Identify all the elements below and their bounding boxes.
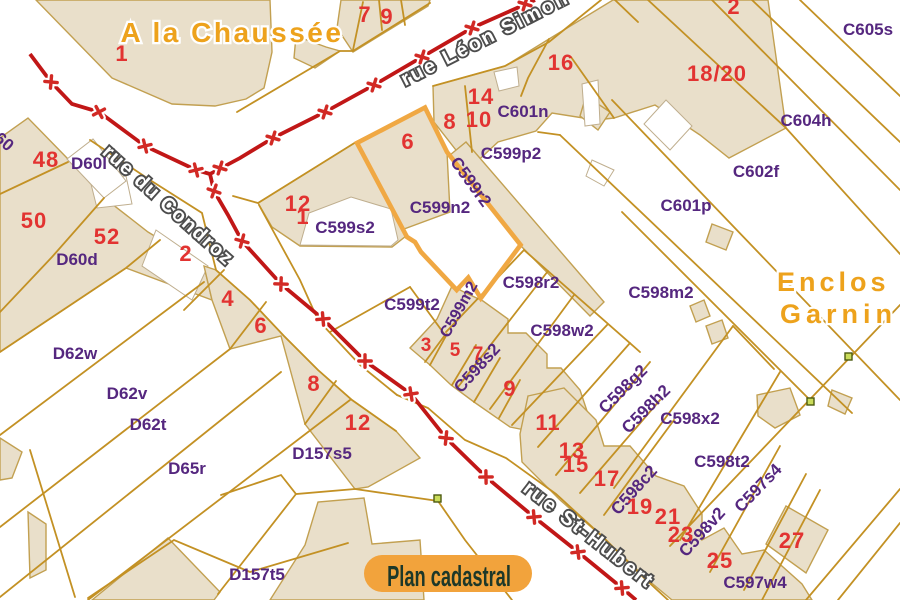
svg-text:1: 1 — [115, 41, 128, 66]
svg-text:C605s: C605s — [843, 20, 893, 39]
svg-text:48: 48 — [33, 147, 59, 172]
svg-text:5: 5 — [450, 340, 461, 361]
svg-text:7: 7 — [358, 2, 371, 27]
svg-text:D60l: D60l — [71, 154, 107, 173]
svg-text:D62w: D62w — [53, 344, 98, 363]
svg-text:C601p: C601p — [660, 196, 711, 215]
svg-text:7: 7 — [473, 344, 484, 365]
svg-text:D157s5: D157s5 — [292, 444, 352, 463]
svg-text:23: 23 — [668, 522, 694, 547]
svg-text:C599n2: C599n2 — [410, 198, 470, 217]
svg-text:25: 25 — [707, 548, 733, 573]
svg-text:C598r2: C598r2 — [503, 273, 560, 292]
svg-text:6: 6 — [254, 313, 267, 338]
svg-text:C598t2: C598t2 — [694, 452, 750, 471]
svg-text:3: 3 — [421, 335, 432, 356]
svg-text:11: 11 — [535, 410, 560, 435]
svg-text:C599t2: C599t2 — [384, 295, 440, 314]
svg-text:C601n: C601n — [497, 102, 548, 121]
svg-text:10: 10 — [466, 107, 492, 132]
svg-text:Garnin: Garnin — [780, 299, 897, 329]
svg-text:D62v: D62v — [107, 384, 148, 403]
svg-text:4: 4 — [221, 286, 234, 311]
svg-text:9: 9 — [380, 4, 393, 29]
svg-text:C597w4: C597w4 — [723, 573, 787, 592]
svg-text:C604h: C604h — [780, 111, 831, 130]
svg-text:12: 12 — [345, 410, 371, 435]
svg-text:6: 6 — [401, 129, 414, 154]
svg-text:C599s2: C599s2 — [315, 218, 375, 237]
svg-text:Plan cadastral: Plan cadastral — [387, 561, 511, 593]
svg-text:C599p2: C599p2 — [481, 144, 541, 163]
svg-text:9: 9 — [503, 376, 516, 401]
svg-text:D60d: D60d — [56, 250, 98, 269]
svg-text:8: 8 — [307, 371, 320, 396]
svg-text:19: 19 — [627, 494, 653, 519]
svg-text:Enclos: Enclos — [777, 267, 890, 297]
svg-text:C598w2: C598w2 — [530, 321, 593, 340]
svg-text:C598x2: C598x2 — [660, 409, 720, 428]
svg-text:A la Chaussée: A la Chaussée — [121, 17, 344, 48]
svg-text:D157t5: D157t5 — [229, 565, 285, 584]
svg-text:52: 52 — [94, 224, 120, 249]
svg-text:27: 27 — [779, 528, 805, 553]
svg-text:D65r: D65r — [168, 459, 206, 478]
svg-text:1: 1 — [296, 204, 309, 229]
svg-text:D62t: D62t — [130, 415, 167, 434]
svg-text:2: 2 — [727, 0, 740, 19]
svg-text:50: 50 — [21, 208, 47, 233]
svg-text:C602f: C602f — [733, 162, 780, 181]
svg-text:16: 16 — [548, 50, 574, 75]
svg-text:17: 17 — [594, 466, 620, 491]
svg-text:2: 2 — [179, 241, 192, 266]
svg-text:18/20: 18/20 — [687, 61, 747, 86]
svg-text:8: 8 — [443, 109, 456, 134]
svg-text:15: 15 — [563, 452, 589, 477]
svg-text:14: 14 — [468, 84, 494, 109]
svg-text:C598m2: C598m2 — [628, 283, 693, 302]
